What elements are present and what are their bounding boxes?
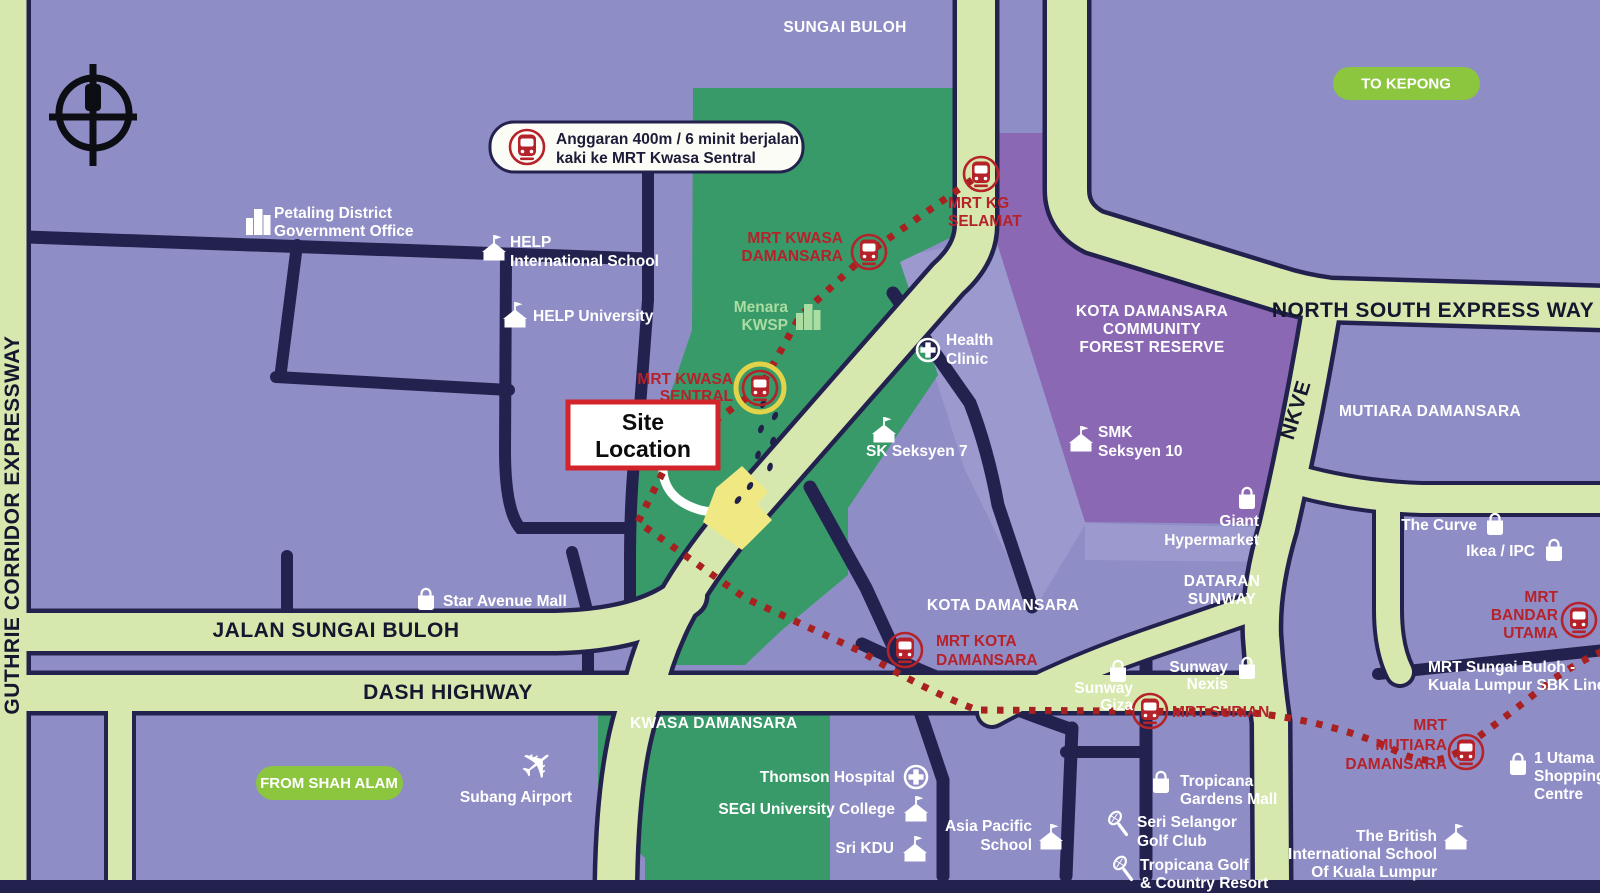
station-label: DAMANSARA <box>1345 756 1447 773</box>
mrt-walk-callout: Anggaran 400m / 6 minit berjalan kaki ke… <box>490 122 803 172</box>
station-label: BANDAR <box>1491 607 1558 624</box>
landmark-label: Gardens Mall <box>1180 791 1277 808</box>
area-label-forest: KOTA DAMANSARA <box>1076 303 1228 320</box>
pill-label: TO KEPONG <box>1361 76 1451 93</box>
area-label-kota-damansara: KOTA DAMANSARA <box>927 597 1079 614</box>
site-location-box: Site Location <box>568 402 718 468</box>
landmark-label: Health <box>946 332 993 349</box>
landmark-label: International School <box>510 253 659 270</box>
site-location-text: Location <box>595 436 691 462</box>
map-screenshot: MRT KG SELAMAT MRT KWASA DAMANSARA MRT K… <box>0 0 1600 893</box>
area-label-kwasa-damansara: KWASA DAMANSARA <box>630 715 798 732</box>
station-label: MUTIARA <box>1376 737 1447 754</box>
area-label-forest: FOREST RESERVE <box>1079 339 1224 356</box>
landmark-label: Petaling District <box>274 205 392 222</box>
landmark-label: Tropicana Golf <box>1140 857 1249 874</box>
station-label: MRT KG <box>948 195 1009 212</box>
landmark-label: SK Seksyen 7 <box>866 443 968 460</box>
area-label-dataran: SUNWAY <box>1188 591 1257 608</box>
pill-label: FROM SHAH ALAM <box>260 775 398 792</box>
landmark-label: Seksyen 10 <box>1098 443 1182 460</box>
landmark-label: Star Avenue Mall <box>443 593 567 610</box>
station-label: MRT KOTA <box>936 633 1017 650</box>
area-label-mutiara: MUTIARA DAMANSARA <box>1339 403 1521 420</box>
area-label-forest: COMMUNITY <box>1103 321 1202 338</box>
site-location-text: Site <box>622 409 664 435</box>
landmark-label: Seri Selangor <box>1137 814 1237 831</box>
landmark-label: HELP University <box>533 308 654 325</box>
station-label: DAMANSARA <box>741 248 843 265</box>
landmark-label: 1 Utama <box>1534 750 1595 767</box>
station-label: SELAMAT <box>948 213 1022 230</box>
station-label: MRT KWASA <box>747 230 843 247</box>
callout-text: Anggaran 400m / 6 minit berjalan <box>556 131 799 148</box>
area-label-sungai-buloh: SUNGAI BULOH <box>783 19 906 36</box>
landmark-label: Of Kuala Lumpur <box>1311 864 1437 881</box>
landmark-label: Subang Airport <box>460 789 572 806</box>
landmark-label: School <box>980 837 1032 854</box>
road-label-dash-highway: DASH HIGHWAY <box>363 681 533 704</box>
landmark-label: Thomson Hospital <box>760 769 895 786</box>
station-label: DAMANSARA <box>936 652 1038 669</box>
landmark-label: Centre <box>1534 786 1583 803</box>
landmark-label: Shopping <box>1534 768 1600 785</box>
landmark-label: Giant <box>1219 513 1259 530</box>
landmark-label: Asia Pacific <box>945 818 1032 835</box>
road-label-guthrie: GUTHRIE CORRIDOR EXPRESSWAY <box>1 335 24 714</box>
area-label-dataran: DATARAN <box>1184 573 1260 590</box>
landmark-label: International School <box>1288 846 1437 863</box>
station-label: MRT <box>1524 589 1558 606</box>
landmark-label: Hypermarket <box>1164 532 1259 549</box>
station-label: MRT <box>1413 717 1447 734</box>
road-label-north-south: NORTH SOUTH EXPRESS WAY <box>1272 299 1594 322</box>
station-label: MRT KWASA <box>637 371 733 388</box>
road-label-sbk-line: MRT Sungai Buloh - <box>1428 659 1575 676</box>
landmark-label: Sunway <box>1074 680 1133 697</box>
landmark-label: The Curve <box>1401 517 1477 534</box>
map-canvas: MRT KG SELAMAT MRT KWASA DAMANSARA MRT K… <box>0 0 1600 893</box>
landmark-label: Menara <box>734 299 789 316</box>
bottom-border-bar <box>0 880 1600 893</box>
landmark-label: Sri KDU <box>835 840 894 857</box>
landmark-label: KWSP <box>742 317 789 334</box>
landmark-label: Tropicana <box>1180 773 1254 790</box>
landmark-label: Golf Club <box>1137 833 1207 850</box>
callout-text: kaki ke MRT Kwasa Sentral <box>556 150 756 167</box>
landmark-label: Government Office <box>274 223 414 240</box>
landmark-label: Giza <box>1100 697 1133 714</box>
landmark-label: HELP <box>510 234 551 251</box>
landmark-label: Sunway <box>1169 659 1228 676</box>
station-label: MRT SURIAN <box>1172 704 1269 721</box>
landmark-label: Nexis <box>1187 676 1228 693</box>
station-label: UTAMA <box>1503 625 1558 642</box>
landmark-label: Ikea / IPC <box>1466 543 1535 560</box>
landmark-label: The British <box>1356 828 1437 845</box>
road-label-sbk-line: Kuala Lumpur SBK Line <box>1428 677 1600 694</box>
landmark-label: & Country Resort <box>1140 875 1268 892</box>
landmark-label: SEGI University College <box>718 801 895 818</box>
landmark-label: Clinic <box>946 351 989 368</box>
road-label-jalan-sungai-buloh: JALAN SUNGAI BULOH <box>212 619 459 642</box>
landmark-label: SMK <box>1098 424 1133 441</box>
